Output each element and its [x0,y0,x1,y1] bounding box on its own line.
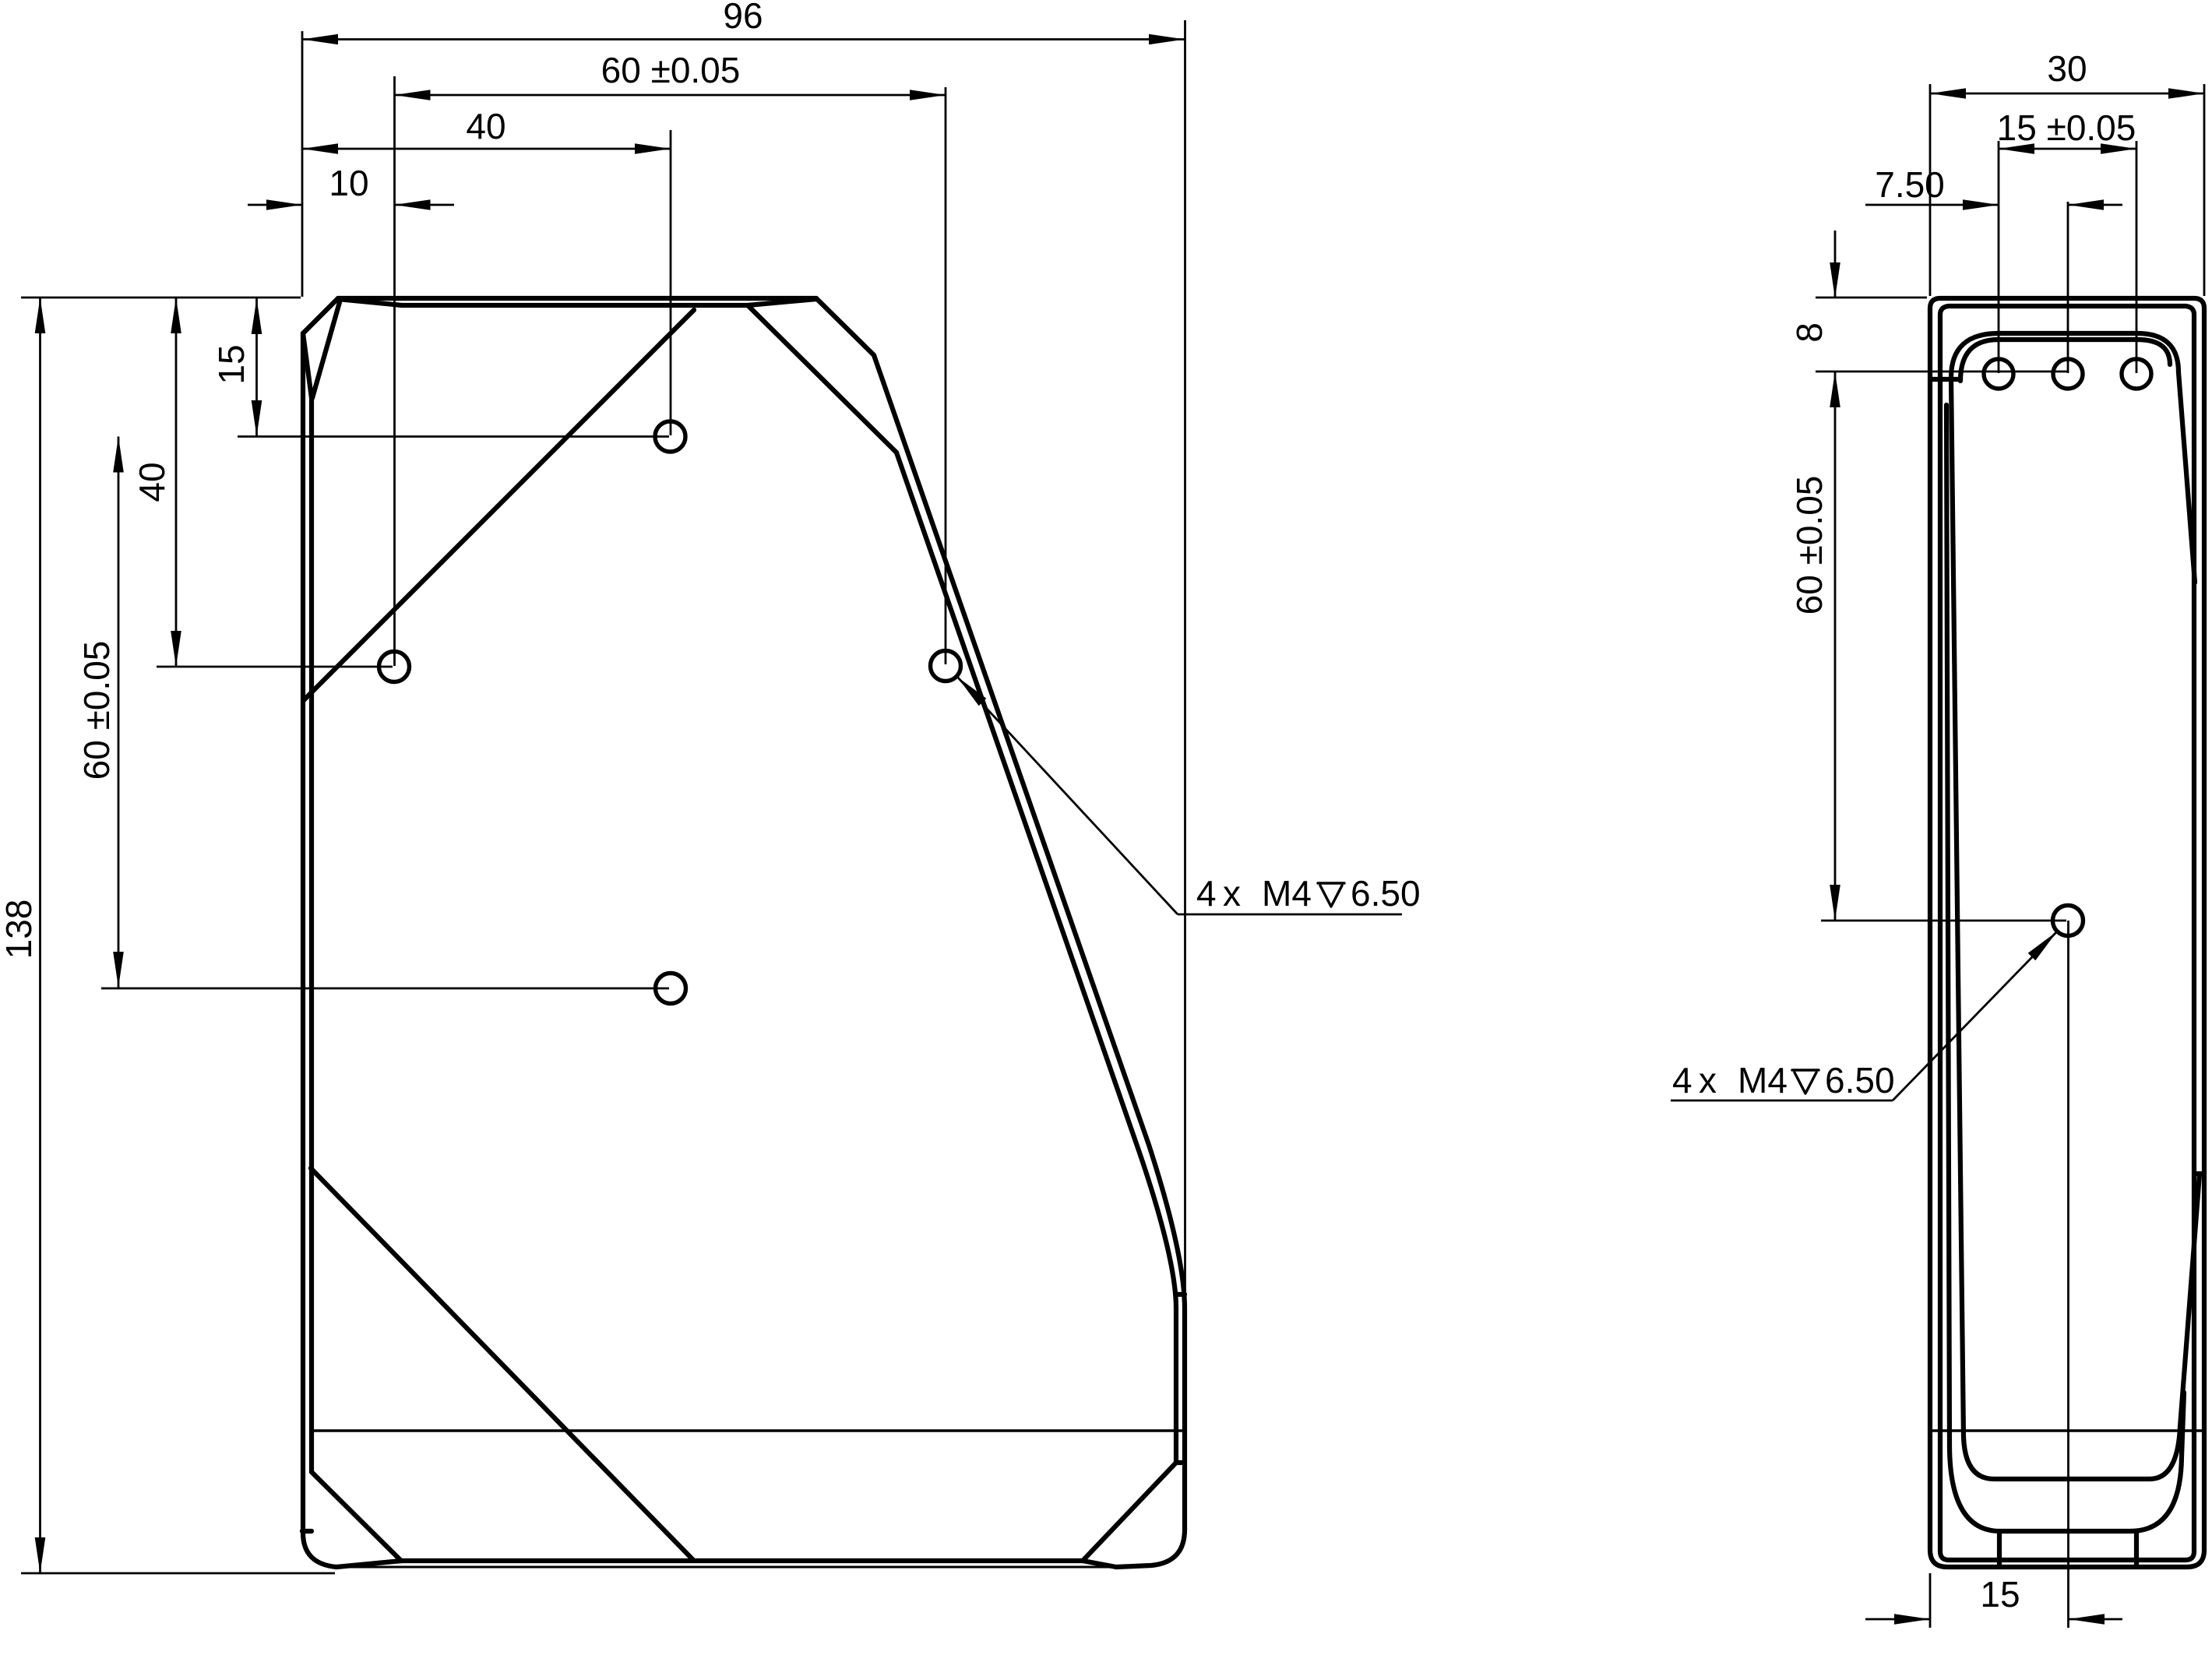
svg-text:60 ±0.05: 60 ±0.05 [1789,476,1830,615]
svg-text:M4: M4 [1262,873,1312,914]
svg-text:x: x [1223,873,1241,914]
svg-text:40: 40 [466,106,505,146]
svg-text:M4: M4 [1738,1060,1788,1100]
svg-text:40: 40 [132,462,172,502]
svg-text:6.50: 6.50 [1825,1060,1895,1100]
svg-text:138: 138 [0,900,39,960]
svg-text:8: 8 [1789,322,1830,343]
svg-text:6.50: 6.50 [1351,873,1421,914]
svg-text:60 ±0.05: 60 ±0.05 [76,641,117,780]
svg-text:4: 4 [1196,873,1217,914]
svg-text:4: 4 [1672,1060,1692,1100]
svg-text:15 ±0.05: 15 ±0.05 [1997,107,2136,148]
svg-text:15: 15 [1980,1574,2020,1615]
svg-text:7.50: 7.50 [1875,164,1945,205]
svg-text:15: 15 [211,344,252,384]
svg-text:10: 10 [329,163,368,203]
svg-text:96: 96 [723,0,763,36]
svg-text:x: x [1699,1060,1717,1100]
svg-text:60 ±0.05: 60 ±0.05 [601,50,741,90]
svg-text:30: 30 [2047,48,2087,89]
